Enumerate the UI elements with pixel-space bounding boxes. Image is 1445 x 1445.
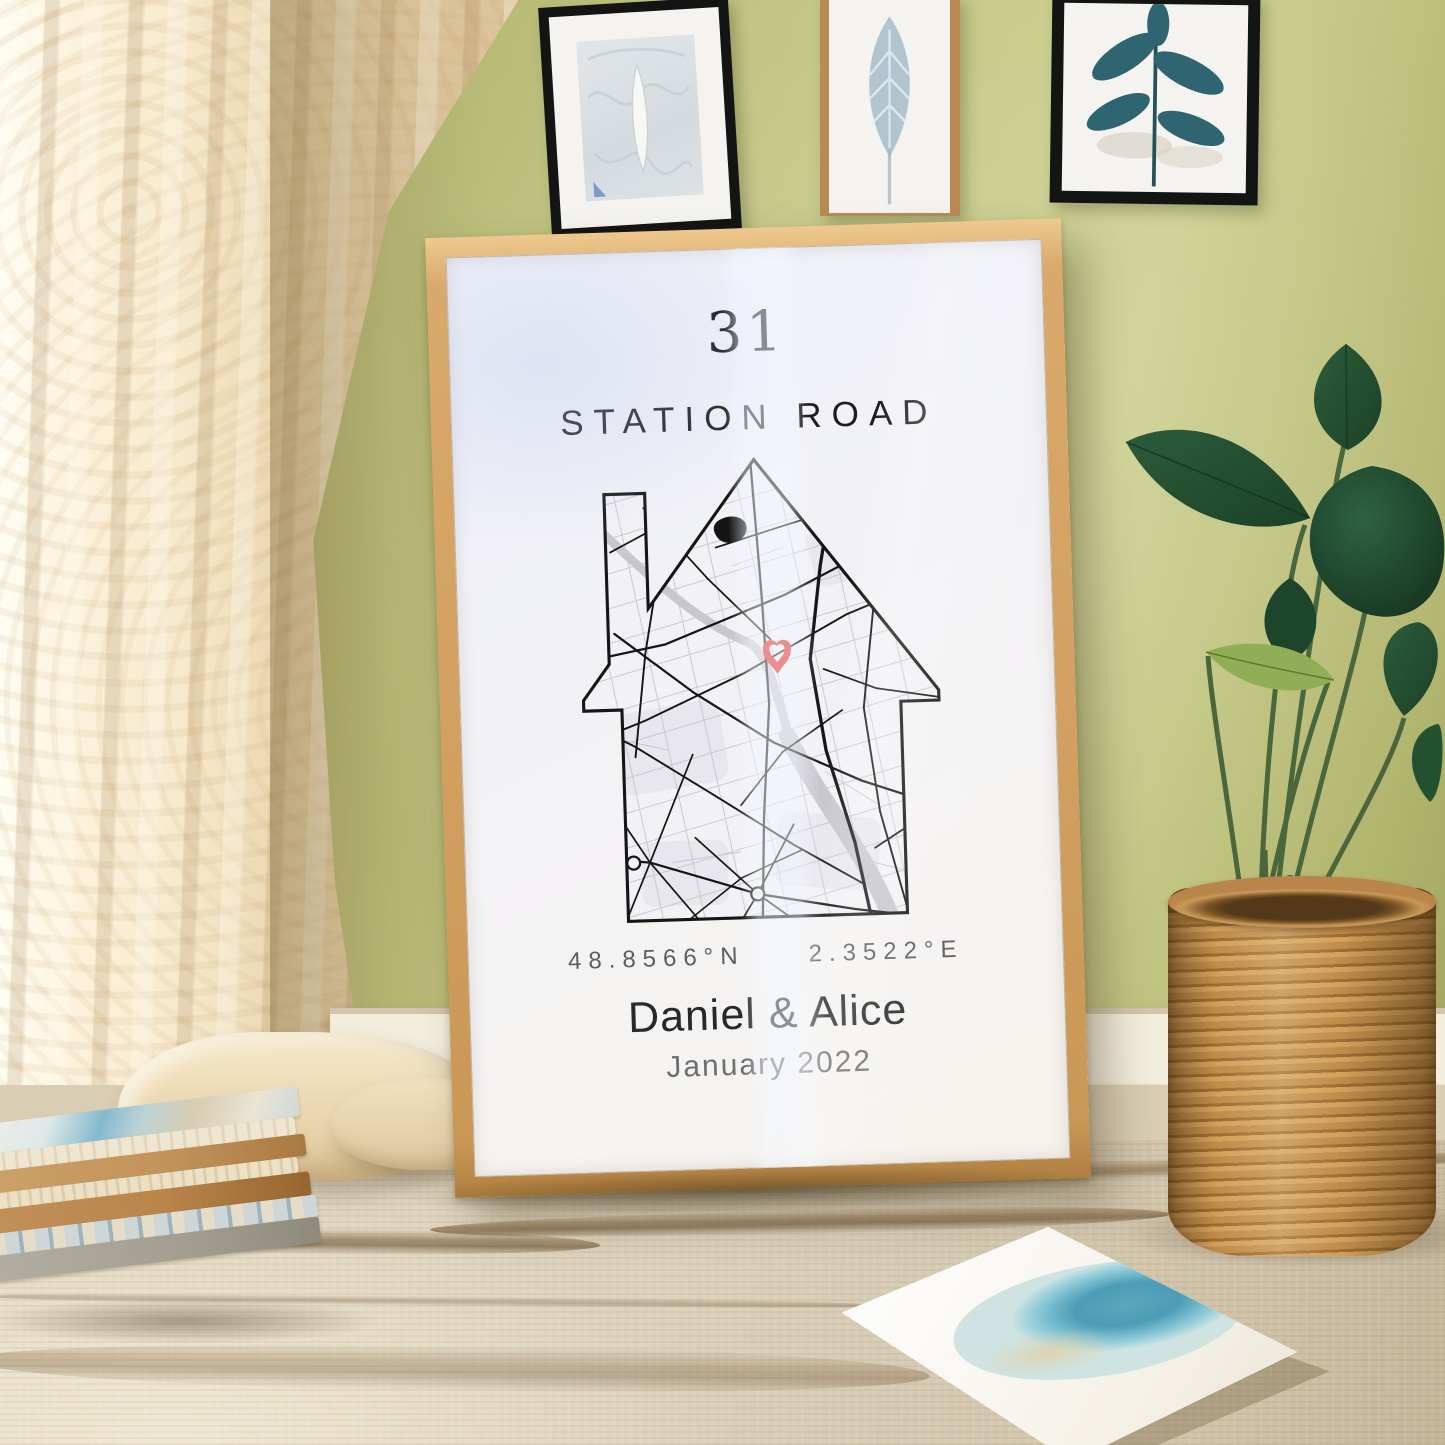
abstract-botanical-art — [576, 35, 704, 202]
houseplant — [960, 330, 1445, 970]
wall-frame-feather-print — [820, 0, 960, 216]
room-scene: 31 STATION ROAD — [0, 0, 1445, 1445]
frame-mat — [549, 7, 732, 229]
leaf-branch-art — [1062, 3, 1249, 194]
wicker-basket — [1168, 888, 1436, 1256]
wicker-basket-rim — [1168, 876, 1436, 928]
feather-art — [829, 0, 950, 213]
frame-mat — [1062, 3, 1249, 194]
abstract-sketch — [576, 35, 704, 202]
frame-mat — [829, 0, 950, 213]
wall-frame-abstract-print — [538, 0, 742, 240]
wall-frame-leaf-print — [1050, 0, 1261, 205]
book-stack — [0, 1083, 347, 1362]
signature-mark — [593, 181, 606, 197]
